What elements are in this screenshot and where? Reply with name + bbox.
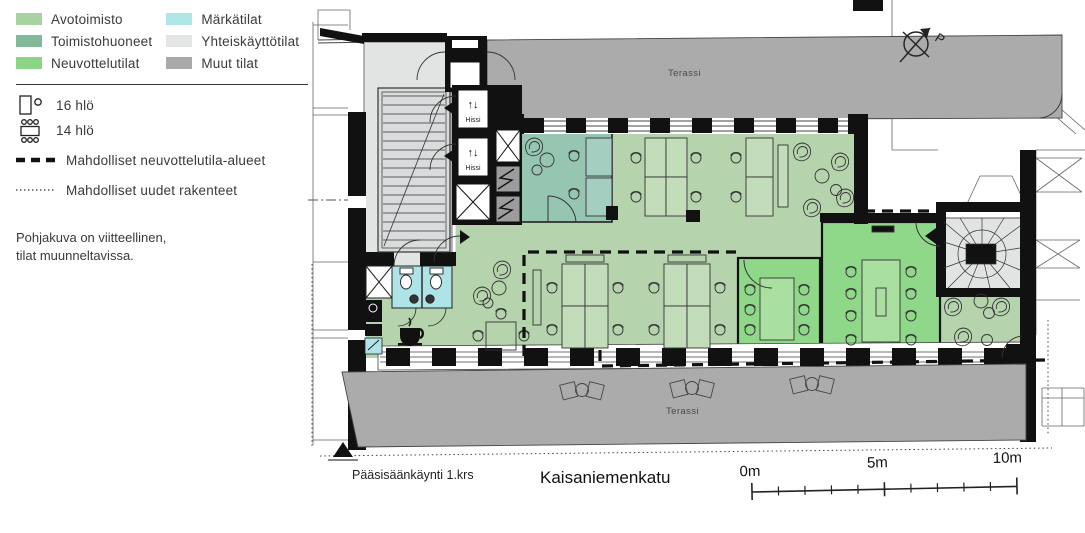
column [606,206,618,220]
line-type-item: Mahdolliset neuvottelutila-alueet [16,147,316,173]
legend-item: Avotoimisto [16,8,152,30]
line-type-item: Mahdolliset uudet rakenteet [16,177,316,203]
scale-end-label: 10m [993,449,1023,467]
main-stairs [378,88,450,252]
capacity-item: 14 hlö [16,118,316,143]
terrace-top-label: Terassi [668,68,701,79]
elevator-arrows-icon: ↑↓ [468,147,479,159]
dotted-line-icon [16,186,56,194]
legend-item: Neuvottelutilat [16,52,152,74]
entrance-label: Pääsisäänkäynti 1.krs [352,468,474,482]
legend-swatch [166,57,192,69]
area-swatch [16,35,42,47]
legend-label: Muut tilat [201,56,258,71]
line-type-label: Mahdolliset uudet rakenteet [66,183,237,198]
legend-item: Toimistohuoneet [16,30,152,52]
legend-item: Muut tilat [166,52,299,74]
elevator-label-lower: Hissi [465,165,481,172]
disclaimer-line: tilat muunneltavissa. [16,247,316,265]
legend-label: Yhteiskäyttötilat [201,34,299,49]
area-swatch [166,13,192,25]
dashed-line-icon [16,156,56,164]
capacity-label: 14 hlö [56,123,94,138]
legend-swatch [166,13,192,25]
scale-start-label: 0m [739,463,760,480]
terrace-bottom-label: Terassi [666,406,699,417]
legend-label: Neuvottelutilat [51,56,140,71]
capacity-item: 16 hlö [16,93,316,118]
legend-label: Märkätilat [201,12,262,27]
legend-label: Toimistohuoneet [51,34,152,49]
column [686,210,700,222]
desk-chair-icon [16,94,46,118]
legend-swatch [16,35,42,47]
area-swatch [16,13,42,25]
disclaimer-text: Pohjakuva on viitteellinen, tilat muunne… [16,229,316,264]
street-label: Kaisaniemenkatu [540,468,670,487]
meeting-table-icon [16,119,46,143]
disclaimer-line: Pohjakuva on viitteellinen, [16,229,316,247]
legend-item: Märkätilat [166,8,299,30]
capacity-label: 16 hlö [56,98,94,113]
legend-swatch [16,57,42,69]
elevator-arrows-icon: ↑↓ [468,99,479,111]
legend-panel: Avotoimisto Toimistohuoneet Neuvotteluti… [16,8,316,264]
area-swatch [166,35,192,47]
elevator-label-upper: Hissi [465,117,481,124]
terrace-top-area [487,35,1062,120]
legend-item: Yhteiskäyttötilat [166,30,299,52]
area-swatch [166,57,192,69]
legend-label: Avotoimisto [51,12,123,27]
scale-middle-label: 5m [867,454,888,471]
legend-swatch [16,13,42,25]
legend-divider [16,84,308,85]
line-type-label: Mahdolliset neuvottelutila-alueet [66,153,265,168]
legend-swatch [166,35,192,47]
area-swatch [16,57,42,69]
scale-bar: 0m 5m 10m [739,449,1022,500]
